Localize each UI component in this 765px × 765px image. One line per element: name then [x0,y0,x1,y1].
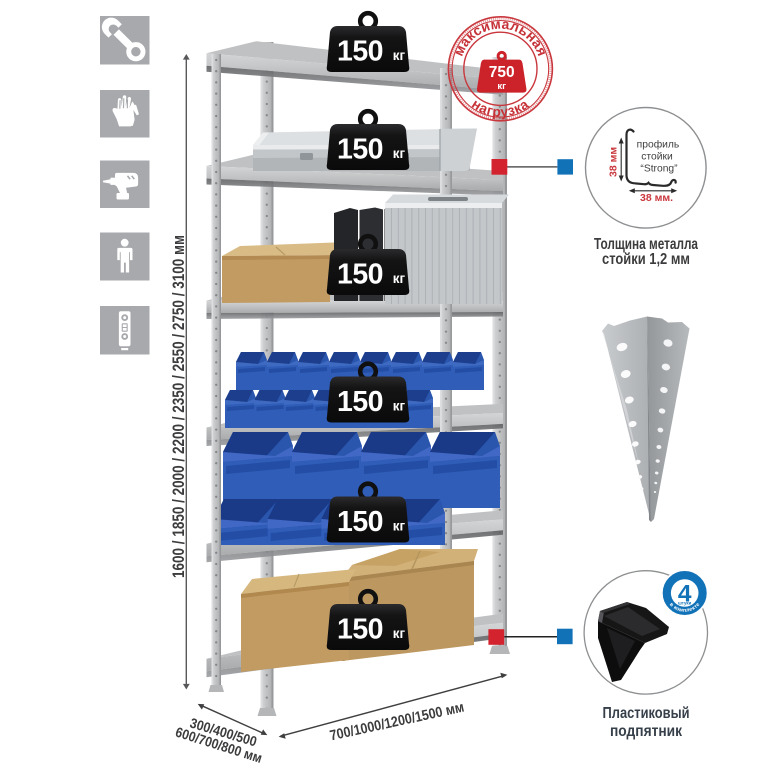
svg-text:1600 / 1850 / 2000 / 2200 / 23: 1600 / 1850 / 2000 / 2200 / 2350 / 2550 … [169,235,188,578]
svg-text:штуки: штуки [678,601,692,606]
svg-text:38 мм.: 38 мм. [640,192,673,204]
svg-text:кг: кг [393,48,406,63]
svg-text:кг: кг [393,626,406,641]
svg-text:кг: кг [393,271,406,286]
svg-text:150: 150 [337,36,383,68]
svg-text:стойки 1,2 мм: стойки 1,2 мм [602,251,690,268]
svg-text:150: 150 [337,506,383,538]
svg-text:кг: кг [393,146,406,161]
svg-text:“Strong”: “Strong” [640,164,678,175]
svg-text:кг: кг [393,399,406,414]
svg-text:стойки: стойки [641,152,673,163]
svg-text:150: 150 [337,259,383,291]
svg-text:150: 150 [337,614,383,646]
svg-text:150: 150 [337,386,383,418]
svg-text:подпятник: подпятник [610,723,683,740]
svg-text:Пластиковый: Пластиковый [603,705,690,722]
svg-text:38 мм: 38 мм [608,147,620,177]
svg-text:150: 150 [337,134,383,166]
svg-text:750: 750 [489,64,515,81]
svg-text:профиль: профиль [637,139,680,151]
svg-text:кг: кг [393,519,406,534]
svg-text:кг: кг [497,81,506,92]
